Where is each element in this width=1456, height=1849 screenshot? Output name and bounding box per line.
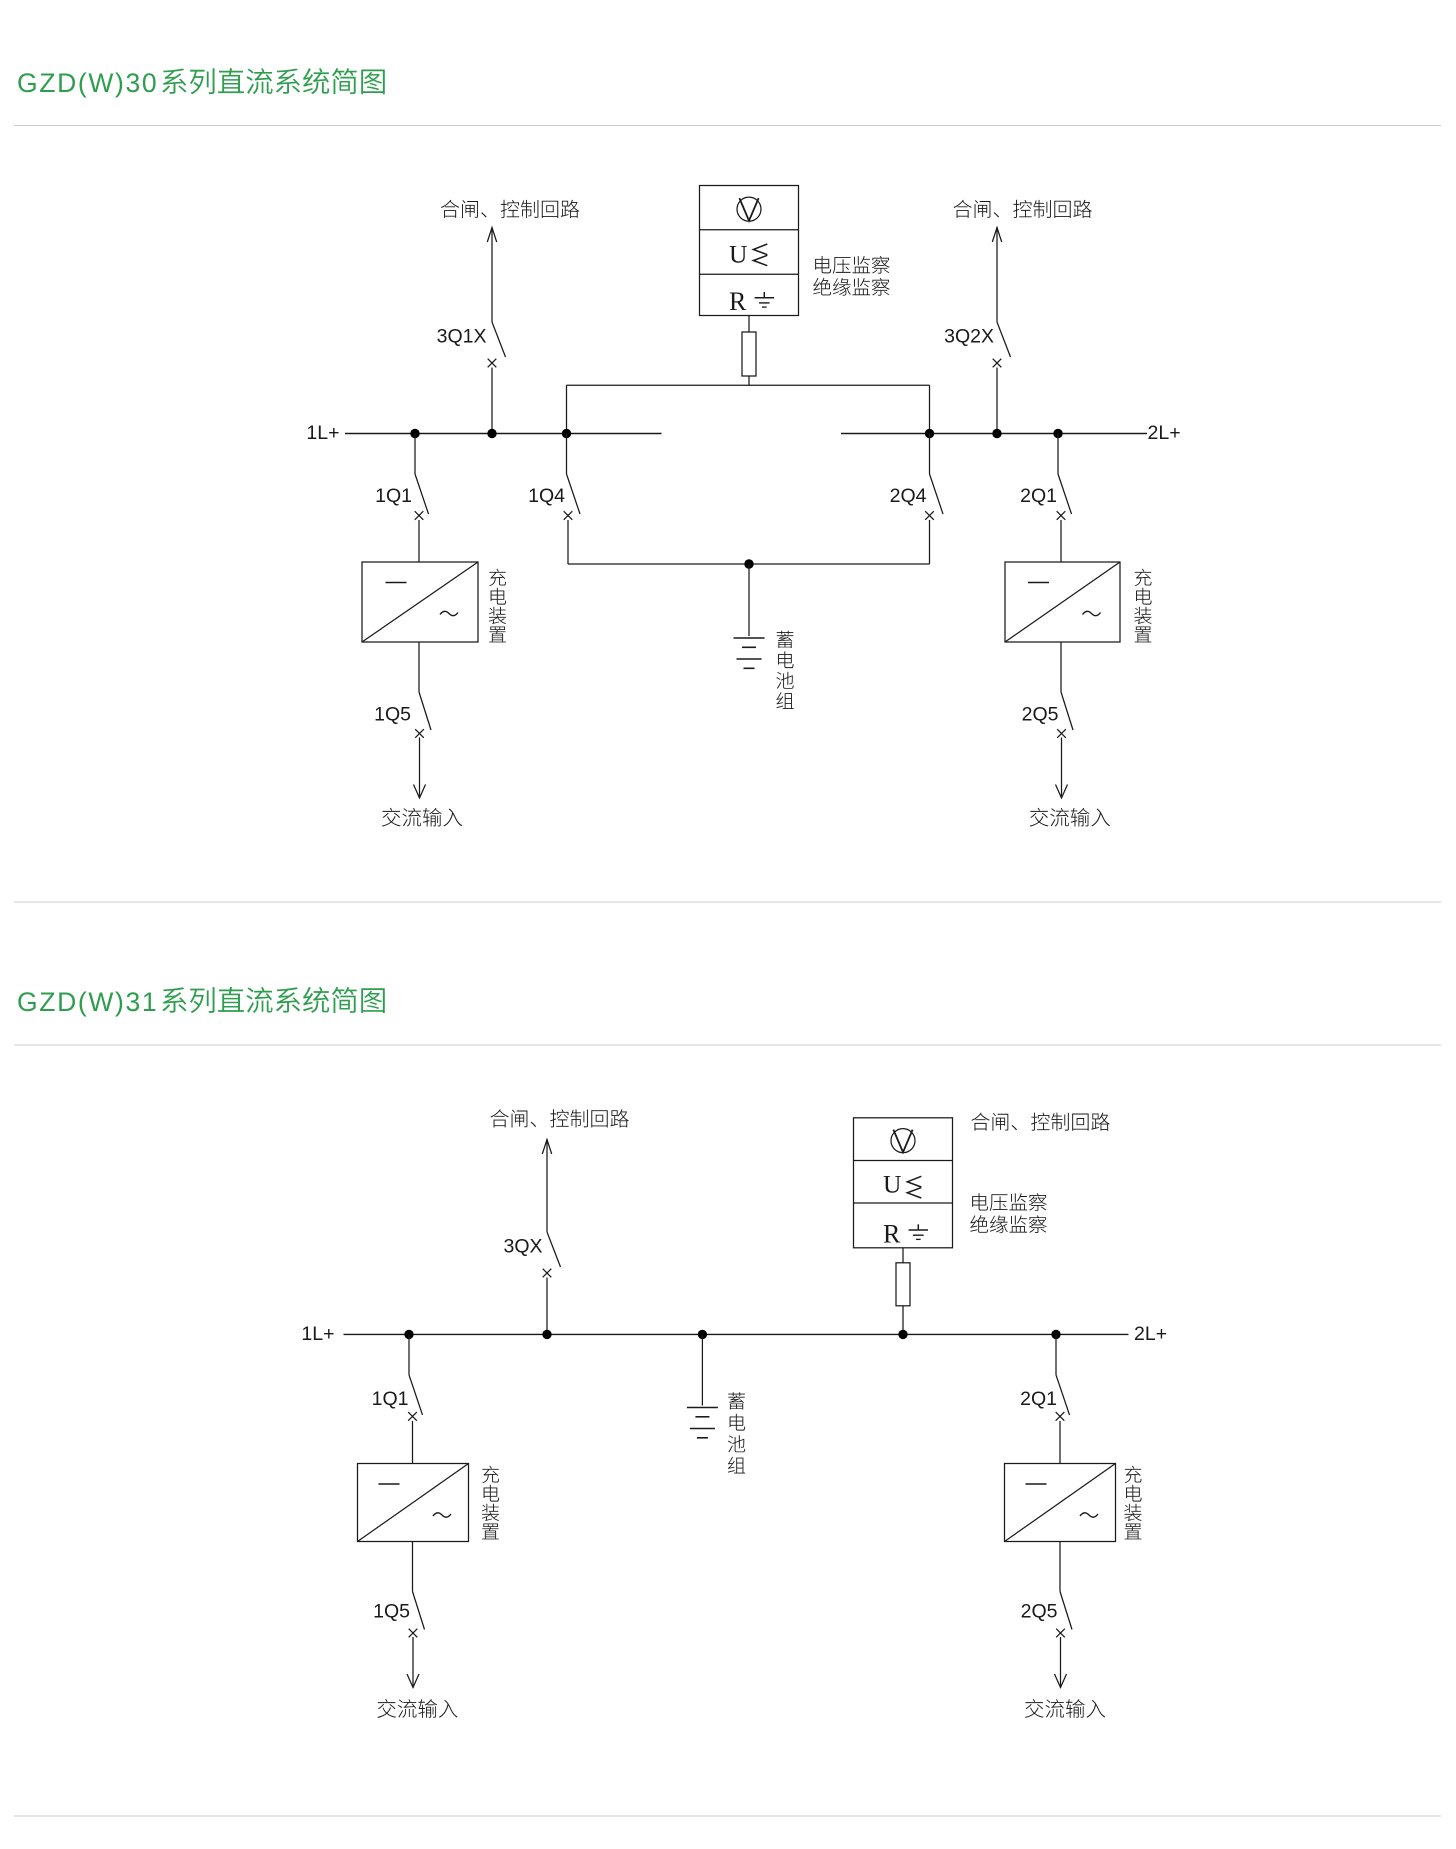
svg-text:2Q1: 2Q1 bbox=[1020, 485, 1057, 507]
svg-text:1L+: 1L+ bbox=[301, 1323, 334, 1345]
svg-text:3QX: 3QX bbox=[503, 1236, 542, 1258]
svg-text:R: R bbox=[729, 287, 747, 316]
svg-text:2Q1: 2Q1 bbox=[1020, 1388, 1057, 1410]
svg-text:GZD(W)30: GZD(W)30 bbox=[17, 68, 158, 98]
svg-text:1Q5: 1Q5 bbox=[373, 1601, 410, 1623]
svg-text:3Q2X: 3Q2X bbox=[944, 326, 994, 348]
svg-text:2L+: 2L+ bbox=[1148, 422, 1181, 444]
svg-text:1Q4: 1Q4 bbox=[528, 485, 565, 507]
svg-text:U: U bbox=[729, 240, 747, 269]
svg-text:2Q5: 2Q5 bbox=[1021, 1601, 1058, 1623]
svg-text:U: U bbox=[883, 1169, 901, 1198]
svg-text:2Q4: 2Q4 bbox=[890, 485, 927, 507]
svg-text:1L+: 1L+ bbox=[306, 422, 339, 444]
svg-text:1Q5: 1Q5 bbox=[374, 704, 411, 726]
svg-text:3Q1X: 3Q1X bbox=[437, 326, 487, 348]
svg-text:1Q1: 1Q1 bbox=[375, 485, 412, 507]
svg-text:GZD(W)31: GZD(W)31 bbox=[17, 987, 158, 1017]
svg-text:2Q5: 2Q5 bbox=[1022, 704, 1059, 726]
svg-text:2L+: 2L+ bbox=[1134, 1323, 1167, 1345]
svg-text:1Q1: 1Q1 bbox=[372, 1388, 409, 1410]
svg-text:R: R bbox=[883, 1220, 901, 1249]
